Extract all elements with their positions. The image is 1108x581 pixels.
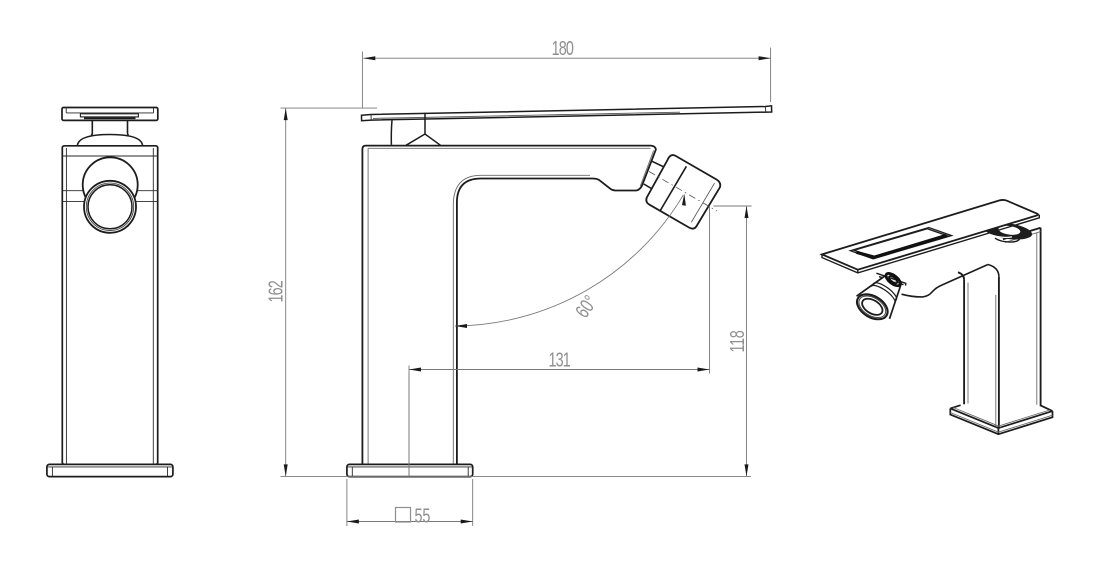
svg-text:131: 131	[549, 348, 571, 371]
svg-text:55: 55	[415, 504, 431, 527]
svg-text:162: 162	[264, 280, 287, 302]
svg-text:118: 118	[726, 330, 749, 352]
svg-text:180: 180	[552, 37, 574, 60]
